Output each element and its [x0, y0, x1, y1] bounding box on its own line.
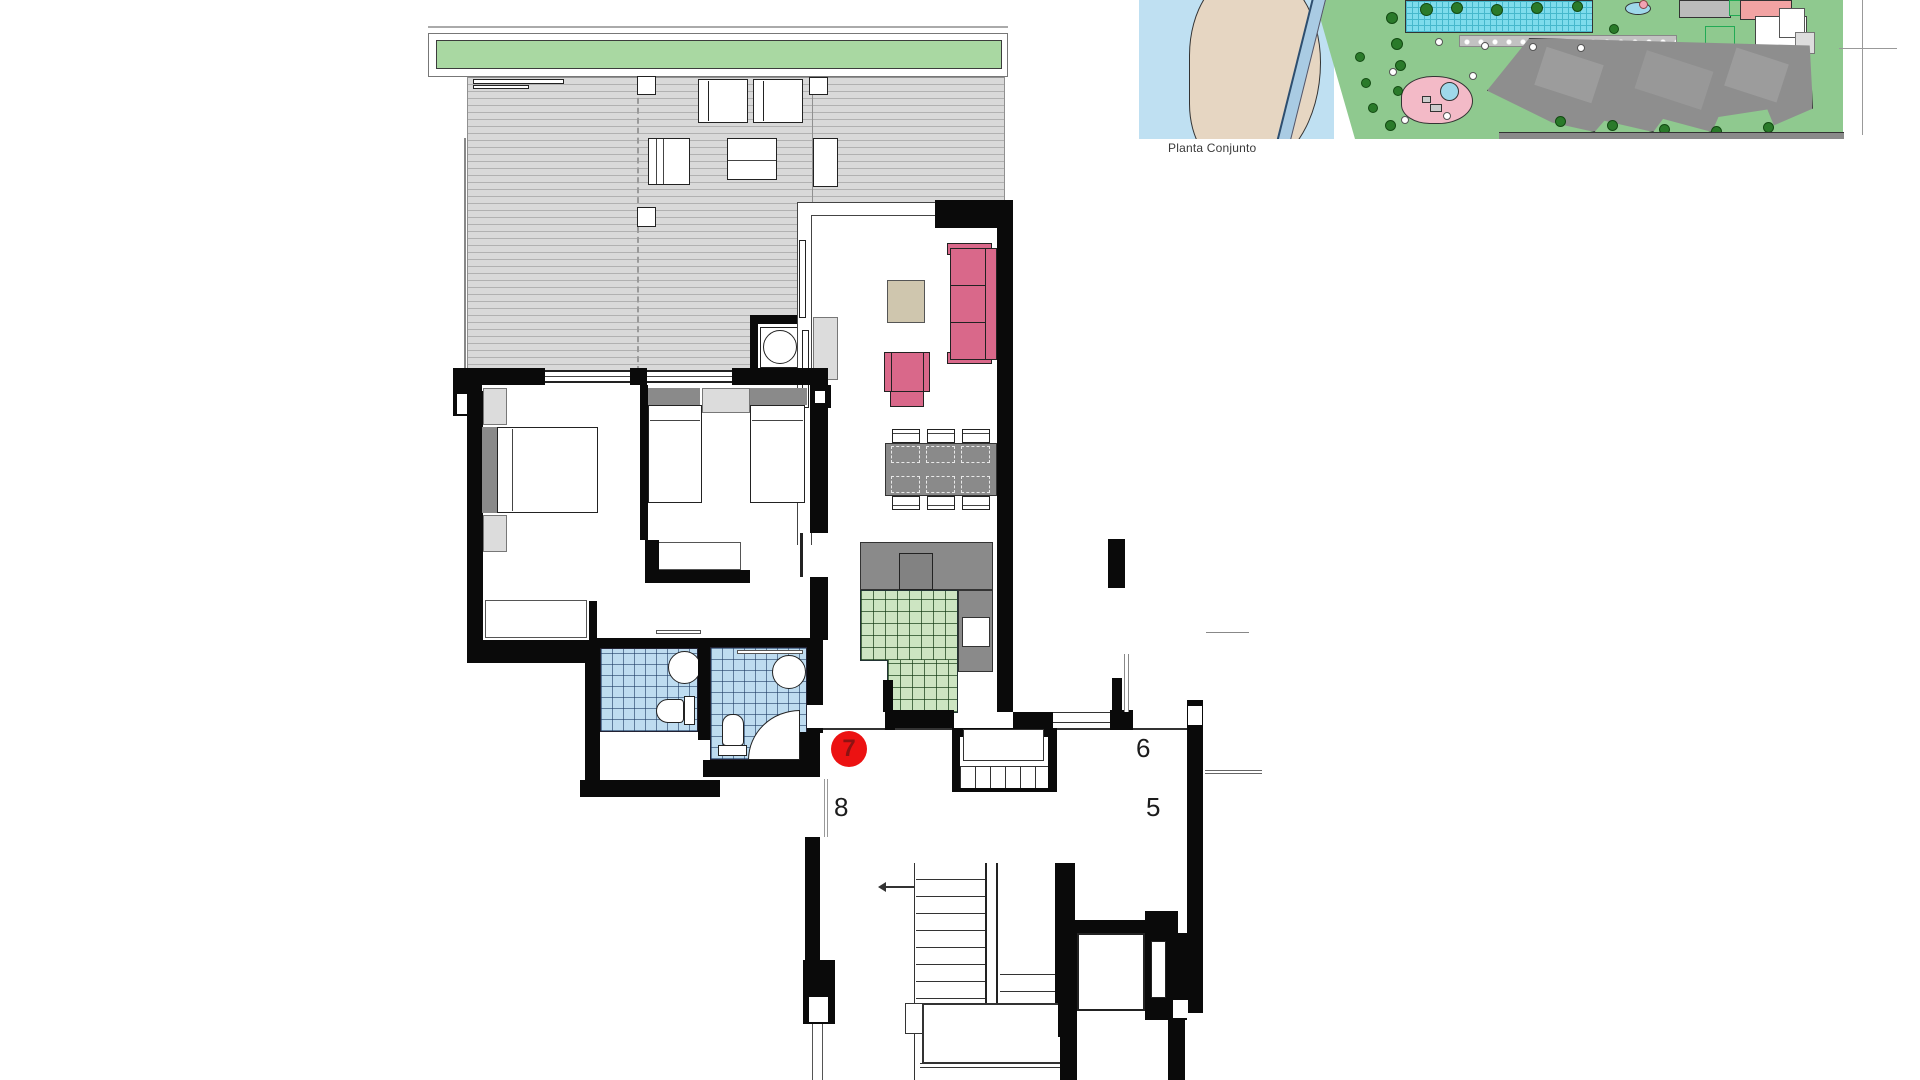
siteplan-edge — [1862, 0, 1863, 135]
play-structure — [1422, 96, 1431, 103]
elevator-door — [1151, 941, 1166, 998]
siteplan-edge — [1839, 48, 1897, 49]
play-structure — [1430, 104, 1442, 112]
nightstand — [483, 515, 507, 552]
sun-lounger — [753, 79, 803, 123]
tucked-chair — [891, 446, 920, 463]
play-area — [1401, 76, 1473, 124]
dining-chair — [927, 496, 955, 510]
tree — [1391, 38, 1403, 50]
wall-niche — [1188, 706, 1202, 725]
nightstand — [483, 388, 507, 425]
skylight-mullion — [656, 139, 657, 184]
tucked-chair — [961, 476, 990, 493]
kitchen-floor — [860, 590, 958, 661]
wall — [597, 638, 698, 648]
shrub — [1443, 112, 1451, 120]
tree — [1393, 86, 1403, 96]
sun-lounger — [698, 79, 748, 123]
shrub — [1529, 43, 1537, 51]
armchair-arm-line — [891, 353, 892, 391]
chair-line — [893, 505, 919, 506]
chair-line — [963, 433, 989, 434]
tucked-chair — [961, 446, 990, 463]
shrub — [1469, 72, 1477, 80]
headboard — [750, 388, 807, 405]
skylight — [727, 138, 777, 180]
headboard — [648, 388, 700, 405]
mailbox-shelves — [960, 766, 1048, 788]
tree — [1361, 78, 1371, 88]
skylight-mullion — [663, 139, 664, 184]
shrub — [1435, 38, 1443, 46]
sliding-door — [800, 533, 803, 577]
tree — [1386, 12, 1398, 24]
wall — [1112, 678, 1122, 730]
side-table — [809, 77, 828, 95]
hall-table — [963, 729, 1044, 761]
wall — [805, 837, 820, 961]
unit-8-label: 8 — [834, 794, 848, 820]
unit-5-label: 5 — [1146, 794, 1160, 820]
siteplan-caption: Planta Conjunto — [1168, 141, 1256, 155]
threshold — [717, 777, 813, 797]
promenade-band — [1499, 132, 1844, 139]
dining-chair — [892, 429, 920, 443]
towel-rail — [737, 650, 803, 654]
wall — [800, 732, 820, 777]
wall — [810, 407, 828, 533]
glazing-line — [824, 779, 828, 837]
armchair-arm-line — [923, 353, 924, 391]
washing-machine-drum — [763, 330, 797, 364]
shrub — [1401, 116, 1409, 124]
tree — [1609, 24, 1619, 34]
wall — [997, 228, 1013, 712]
wall — [710, 638, 807, 647]
wall — [698, 638, 710, 740]
chair-line — [928, 505, 954, 506]
tree — [1355, 52, 1365, 62]
tree — [1368, 103, 1378, 113]
nightstand — [702, 388, 750, 413]
toilet — [656, 699, 684, 723]
deck-step — [473, 85, 529, 89]
planter — [436, 40, 1002, 69]
tree — [1572, 1, 1583, 12]
wall — [935, 200, 1013, 228]
wall — [645, 570, 750, 583]
sofa-cushion-line — [951, 322, 985, 323]
wall — [810, 577, 828, 640]
wall — [640, 385, 648, 540]
window — [1053, 712, 1110, 723]
kitchen-sink — [962, 617, 990, 647]
tree — [1531, 2, 1543, 14]
deck-step — [473, 79, 564, 84]
glazing-line — [1124, 654, 1129, 712]
dresser — [485, 600, 587, 638]
wall — [888, 710, 954, 730]
washbasin — [772, 655, 806, 689]
shrub — [1389, 68, 1397, 76]
dining-chair — [892, 496, 920, 510]
landing-tab — [905, 1003, 923, 1034]
balcony-rail — [1205, 770, 1262, 774]
duct-void — [815, 391, 825, 403]
skylight — [648, 138, 690, 185]
skylight-mullion — [728, 160, 776, 161]
tucked-chair — [891, 476, 920, 493]
stair-arrow — [885, 886, 915, 888]
tucked-chair — [926, 476, 955, 493]
road — [1679, 0, 1731, 18]
balcony-rail — [1206, 632, 1249, 633]
toilet-tank — [718, 745, 747, 756]
toilet-tank — [684, 696, 695, 725]
shower-area — [601, 733, 689, 780]
chair-line — [893, 433, 919, 434]
toilet — [722, 714, 744, 746]
wall — [645, 540, 659, 583]
desk — [653, 542, 741, 570]
pillow-line — [650, 420, 700, 421]
wall — [1145, 911, 1178, 920]
window-glazing — [545, 376, 630, 377]
railing — [812, 1024, 813, 1080]
landing-line — [920, 1063, 1063, 1068]
coffee-table — [887, 280, 925, 323]
dining-chair — [927, 429, 955, 443]
skylight — [813, 138, 838, 187]
stair-flight — [1000, 958, 1055, 1004]
wall — [1060, 1037, 1077, 1080]
column-void — [809, 997, 828, 1022]
kitchen-floor — [887, 660, 958, 713]
sofa-back-line — [985, 249, 986, 359]
railing — [822, 1024, 823, 1080]
wall — [580, 780, 720, 797]
lounger-headrest — [763, 81, 764, 121]
wall — [467, 640, 593, 663]
lounger-headrest — [708, 81, 709, 121]
wall — [807, 638, 823, 705]
sliding-pane — [799, 240, 806, 318]
glass-wall — [811, 215, 935, 216]
wall — [1108, 539, 1125, 588]
wall-niche — [1173, 1000, 1188, 1018]
tree — [1420, 3, 1433, 16]
floorplan-page: Planta Conjunto — [0, 0, 1920, 1080]
pillow-line — [512, 429, 513, 511]
sofa-cushion-line — [951, 285, 985, 286]
dining-chair — [962, 496, 990, 510]
side-table — [637, 76, 656, 95]
pillow-line — [752, 420, 803, 421]
unit-7-number: 7 — [842, 735, 855, 763]
terrace-deck — [812, 77, 1005, 203]
wall — [1168, 1018, 1185, 1080]
wall — [732, 368, 828, 385]
wall — [885, 710, 895, 730]
headboard — [482, 427, 497, 513]
wall — [1187, 700, 1203, 1013]
dining-chair — [962, 429, 990, 443]
stair-landing — [922, 1003, 1062, 1064]
stair-edge — [914, 863, 915, 1080]
wall — [467, 391, 483, 663]
side-table — [637, 207, 656, 227]
window-glazing — [647, 376, 732, 377]
shrub — [1577, 44, 1585, 52]
tree — [1607, 120, 1618, 131]
site-plan — [1139, 0, 1899, 139]
cooktop — [899, 553, 933, 590]
unit-6-label: 6 — [1136, 735, 1150, 761]
tree — [1451, 2, 1463, 14]
sofa — [950, 248, 997, 360]
washbasin — [668, 651, 701, 684]
wall — [703, 760, 807, 777]
shrub — [1481, 42, 1489, 50]
roof-overhang-line — [428, 26, 1008, 28]
tree — [1491, 4, 1503, 16]
tree — [1555, 116, 1566, 127]
parasol — [1639, 0, 1648, 9]
unit-7-marker: 7 — [831, 731, 867, 767]
stair-flight — [916, 863, 985, 1004]
wall — [1058, 933, 1077, 1037]
tucked-chair — [926, 446, 955, 463]
stair-arrowhead — [878, 882, 886, 892]
wall — [883, 680, 893, 712]
chair-line — [963, 505, 989, 506]
wall — [585, 648, 600, 780]
stair-stringer — [985, 863, 998, 1004]
tree — [1385, 120, 1396, 131]
wall — [630, 368, 647, 385]
deck-edge-line — [464, 138, 466, 373]
towel-rail — [656, 630, 701, 634]
wall — [1060, 920, 1178, 933]
chair-line — [928, 433, 954, 434]
spa-pool — [1440, 82, 1459, 101]
elevator-cab — [1077, 933, 1145, 1011]
